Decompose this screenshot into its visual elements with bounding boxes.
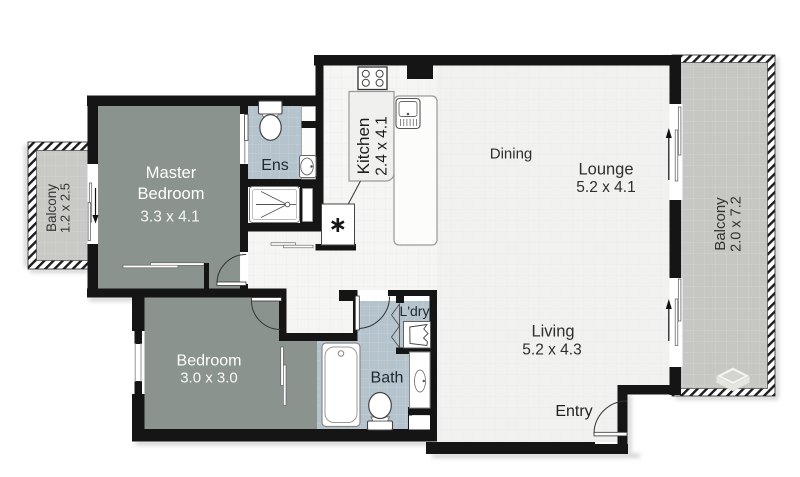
svg-text:Living: Living xyxy=(531,323,574,341)
svg-text:Balcony: Balcony xyxy=(712,197,729,251)
svg-text:Bedroom: Bedroom xyxy=(138,185,205,203)
svg-text:Ens: Ens xyxy=(261,157,289,174)
svg-text:3.0 x 3.0: 3.0 x 3.0 xyxy=(180,370,238,387)
svg-text:Kitchen: Kitchen xyxy=(354,118,373,175)
svg-text:1.2 x 2.5: 1.2 x 2.5 xyxy=(58,183,73,233)
svg-text:2.0 x 7.2: 2.0 x 7.2 xyxy=(729,196,745,252)
svg-text:Dining: Dining xyxy=(490,146,533,163)
svg-text:5.2 x 4.1: 5.2 x 4.1 xyxy=(576,179,635,196)
svg-text:5.2 x 4.3: 5.2 x 4.3 xyxy=(522,342,581,359)
svg-text:Master: Master xyxy=(146,164,197,182)
svg-text:Bedroom: Bedroom xyxy=(177,353,242,370)
svg-text:3.3 x 4.1: 3.3 x 4.1 xyxy=(140,209,199,226)
svg-text:Lounge: Lounge xyxy=(578,161,633,179)
svg-text:L'dry: L'dry xyxy=(400,303,430,319)
svg-text:2.4 x 4.1: 2.4 x 4.1 xyxy=(374,116,391,175)
svg-text:Bath: Bath xyxy=(371,370,404,387)
svg-text:Entry: Entry xyxy=(555,403,592,420)
